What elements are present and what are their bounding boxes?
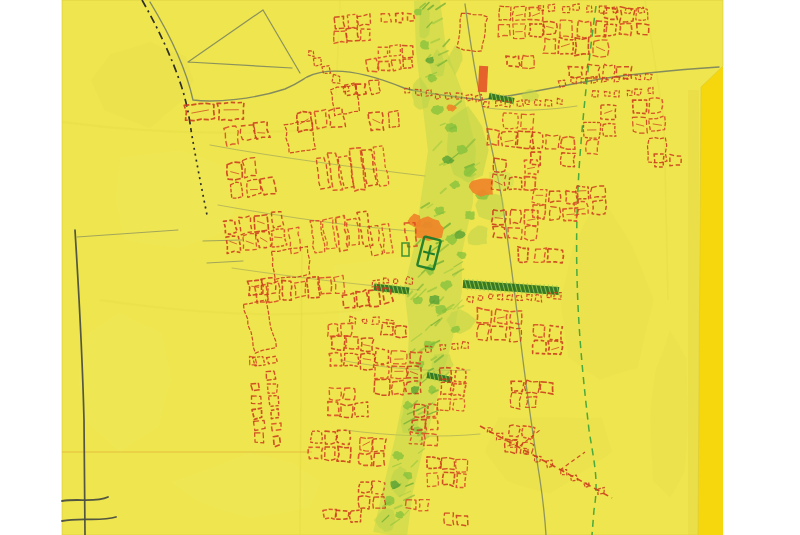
orange-bar-building (478, 66, 488, 92)
scanned-map-page (0, 0, 800, 535)
map-canvas (0, 0, 800, 535)
